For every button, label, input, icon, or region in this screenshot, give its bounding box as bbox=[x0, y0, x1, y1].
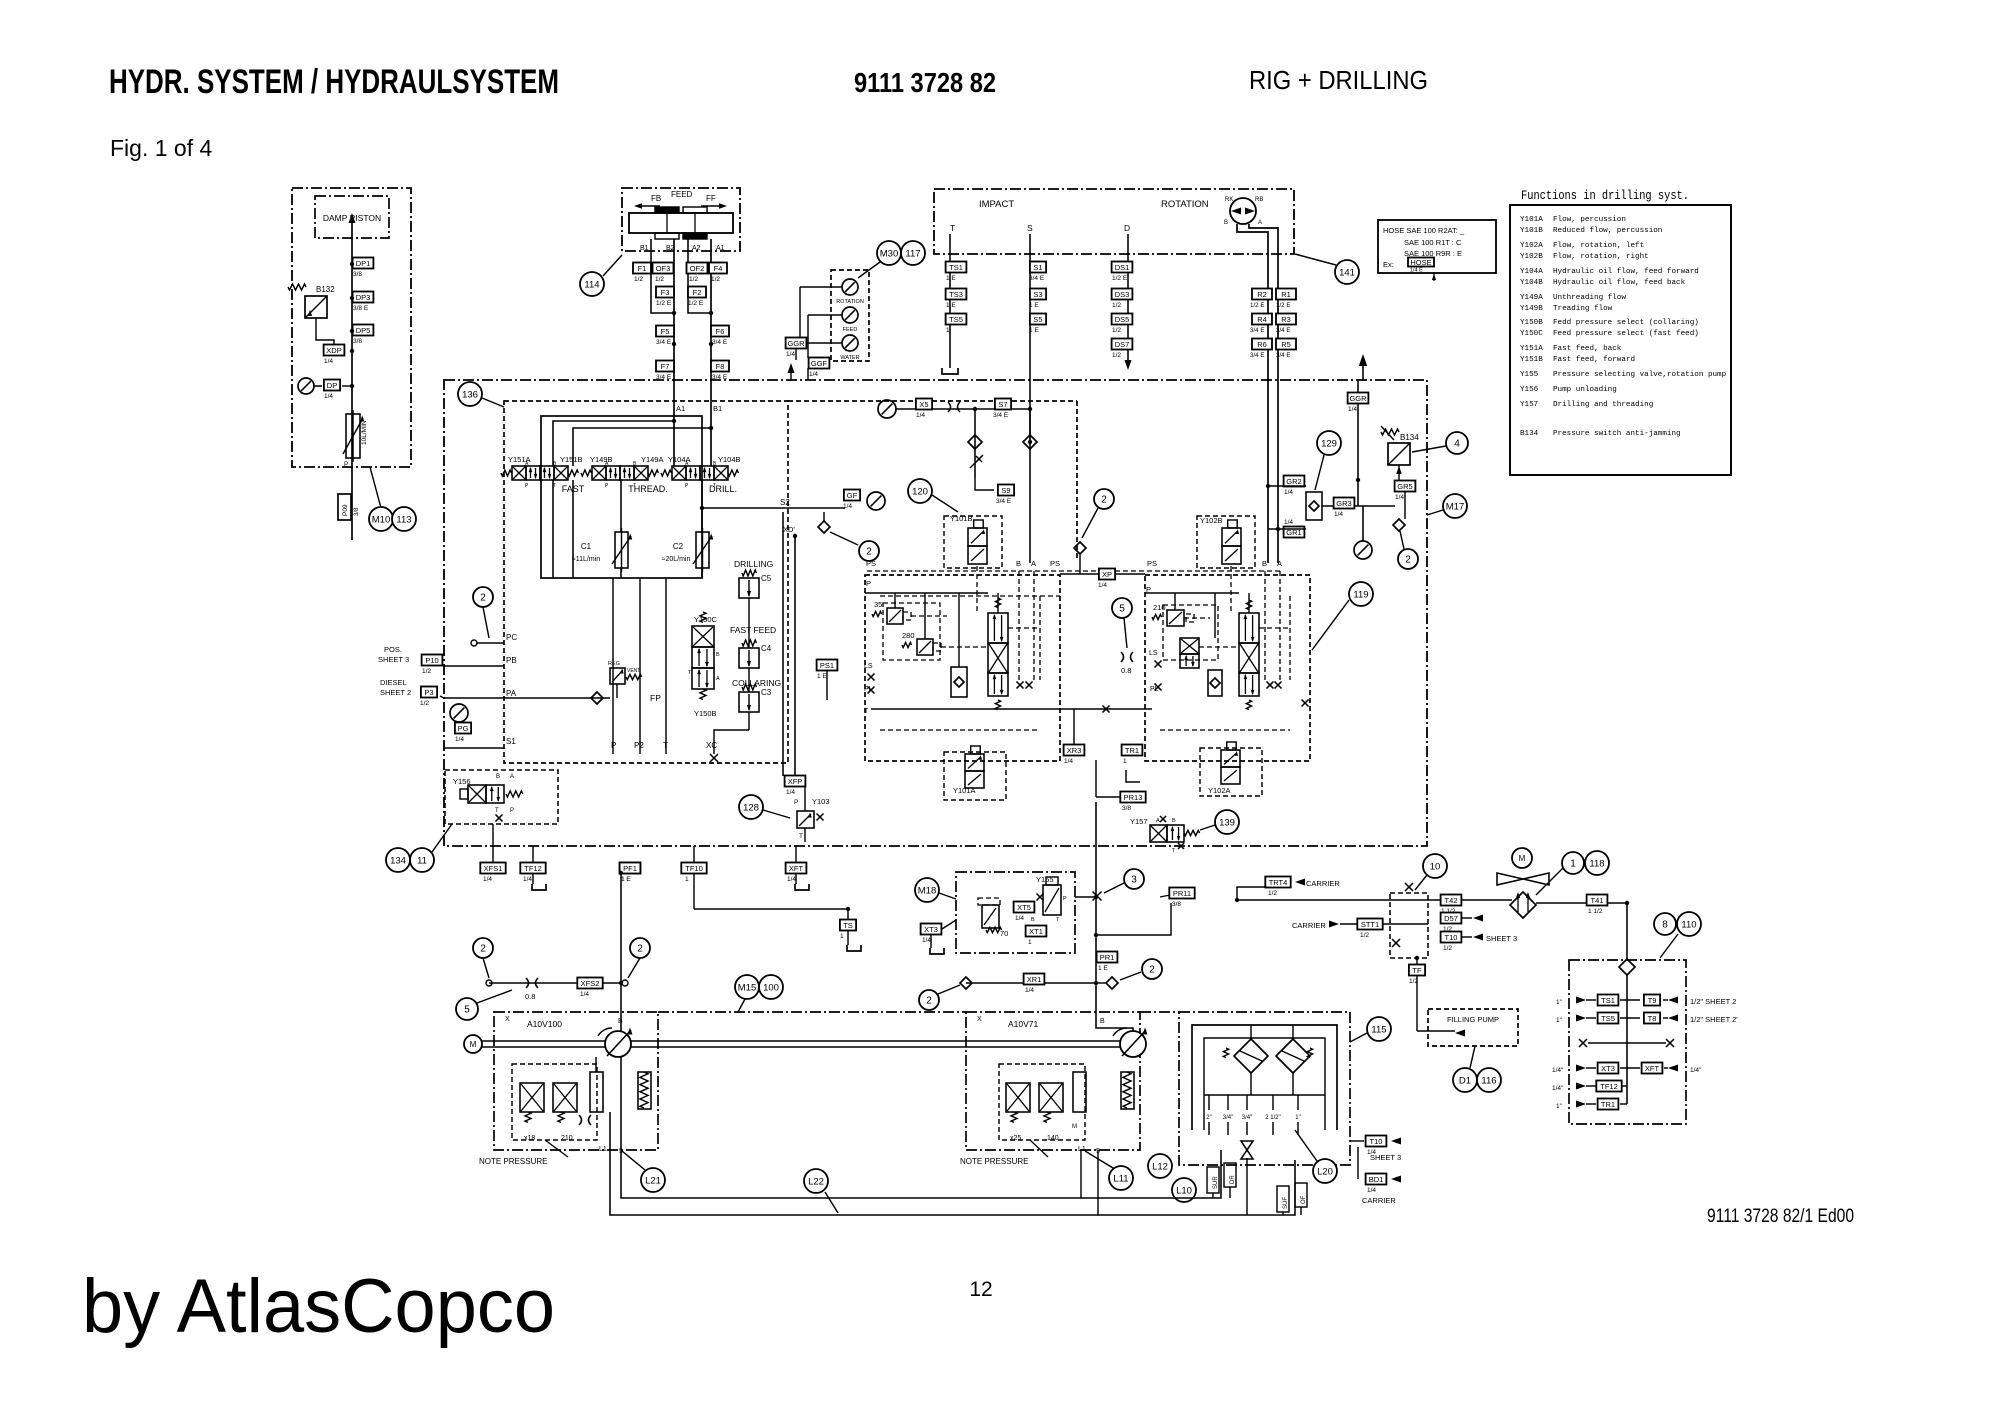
svg-text:B: B bbox=[1031, 917, 1035, 923]
svg-text:NOTE PRESSURE: NOTE PRESSURE bbox=[960, 1157, 1028, 1166]
svg-text:Reduced flow, percussion: Reduced flow, percussion bbox=[1553, 227, 1662, 235]
svg-text:Hydraulic oil flow, feed back: Hydraulic oil flow, feed back bbox=[1553, 279, 1686, 287]
svg-text:B: B bbox=[1172, 818, 1176, 824]
svg-text:1/4": 1/4" bbox=[1690, 1067, 1702, 1074]
svg-text:PA: PA bbox=[506, 689, 517, 698]
svg-text:1/4": 1/4" bbox=[1552, 1067, 1564, 1074]
svg-text:1/2: 1/2 bbox=[420, 700, 429, 707]
svg-text:T: T bbox=[799, 833, 803, 840]
svg-text:FB: FB bbox=[651, 194, 661, 203]
svg-text:T42: T42 bbox=[1445, 896, 1458, 905]
svg-text:R2: R2 bbox=[1257, 290, 1267, 299]
svg-text:B1: B1 bbox=[713, 404, 722, 413]
svg-text:DS5: DS5 bbox=[1115, 315, 1130, 324]
svg-text:3/4 E: 3/4 E bbox=[1029, 275, 1045, 282]
svg-text:SAE 100 R1T : C: SAE 100 R1T : C bbox=[1404, 238, 1462, 247]
svg-text:Y149A: Y149A bbox=[641, 455, 664, 464]
svg-text:P: P bbox=[794, 799, 798, 806]
svg-text:B: B bbox=[1262, 559, 1267, 568]
svg-text:X5: X5 bbox=[919, 400, 928, 409]
svg-text:4: 4 bbox=[1454, 439, 1460, 450]
svg-text:X: X bbox=[977, 1016, 982, 1023]
svg-text:P10: P10 bbox=[425, 656, 438, 665]
svg-text:DS7: DS7 bbox=[1115, 340, 1130, 349]
svg-text:P: P bbox=[344, 461, 348, 468]
svg-text:1/2: 1/2 bbox=[1409, 978, 1418, 985]
svg-text:1/4: 1/4 bbox=[523, 876, 532, 883]
svg-text:R4: R4 bbox=[1257, 315, 1267, 324]
svg-text:10L/MIN: 10L/MIN bbox=[361, 420, 368, 445]
svg-text:1/2: 1/2 bbox=[655, 276, 664, 283]
svg-text:Y150B: Y150B bbox=[1520, 319, 1543, 327]
svg-text:120: 120 bbox=[912, 486, 928, 497]
svg-text:R3: R3 bbox=[1281, 315, 1291, 324]
svg-text:Y150C: Y150C bbox=[1520, 330, 1543, 338]
svg-text:PS: PS bbox=[1050, 559, 1060, 568]
svg-text:by AtlasCopco: by AtlasCopco bbox=[82, 1264, 555, 1349]
svg-text:A1: A1 bbox=[716, 245, 725, 252]
svg-text:Y102A: Y102A bbox=[1520, 242, 1543, 250]
svg-text:PS: PS bbox=[1147, 559, 1157, 568]
svg-text:F2: F2 bbox=[693, 288, 702, 297]
svg-text:FEED: FEED bbox=[843, 327, 858, 333]
svg-text:1/4: 1/4 bbox=[1334, 511, 1343, 518]
svg-text:DS3: DS3 bbox=[1115, 290, 1130, 299]
svg-text:x18: x18 bbox=[524, 1135, 535, 1142]
svg-text:FAST FEED: FAST FEED bbox=[730, 625, 776, 635]
svg-text:1: 1 bbox=[840, 933, 844, 940]
svg-text:A: A bbox=[1156, 818, 1160, 824]
svg-text:OF2: OF2 bbox=[690, 264, 705, 273]
svg-text:1/2: 1/2 bbox=[689, 276, 698, 283]
svg-text:C3: C3 bbox=[761, 688, 772, 697]
svg-text:P2: P2 bbox=[634, 741, 644, 750]
svg-text:1: 1 bbox=[1123, 758, 1127, 765]
svg-text:M30: M30 bbox=[880, 248, 898, 259]
svg-text:1/4: 1/4 bbox=[922, 937, 931, 944]
svg-text:TRT4: TRT4 bbox=[1269, 878, 1288, 887]
svg-text:3/4 E: 3/4 E bbox=[1276, 327, 1290, 334]
svg-text:113: 113 bbox=[396, 514, 411, 525]
svg-text:B132: B132 bbox=[316, 285, 335, 294]
svg-text:RK: RK bbox=[1225, 197, 1233, 203]
svg-text:GGF: GGF bbox=[811, 359, 828, 368]
svg-text:Y102B: Y102B bbox=[1200, 516, 1223, 525]
svg-text:SUR: SUR bbox=[1213, 1176, 1219, 1189]
svg-text:141: 141 bbox=[1339, 267, 1355, 278]
svg-text:1/4: 1/4 bbox=[1098, 582, 1107, 589]
svg-text:Treading flow: Treading flow bbox=[1553, 305, 1613, 313]
svg-text:F3: F3 bbox=[661, 288, 670, 297]
svg-text:Unthreading flow: Unthreading flow bbox=[1553, 294, 1626, 302]
svg-text:S1: S1 bbox=[506, 737, 516, 746]
svg-text:PB: PB bbox=[506, 656, 517, 665]
svg-text:S1: S1 bbox=[1033, 263, 1042, 272]
svg-text:XFS1: XFS1 bbox=[484, 864, 503, 873]
svg-text:B: B bbox=[496, 774, 500, 780]
svg-text:1/4: 1/4 bbox=[324, 393, 333, 400]
svg-text:S5: S5 bbox=[1033, 315, 1042, 324]
svg-text:Y101A: Y101A bbox=[953, 786, 976, 795]
svg-text:11: 11 bbox=[417, 855, 427, 866]
svg-text:1/4: 1/4 bbox=[809, 371, 818, 378]
svg-text:HOSE SAE 100 R2AT: _: HOSE SAE 100 R2AT: _ bbox=[1383, 226, 1465, 235]
svg-text:2: 2 bbox=[480, 593, 486, 604]
svg-text:3/8: 3/8 bbox=[353, 271, 362, 278]
svg-text:X: X bbox=[505, 1016, 510, 1023]
svg-text:ROTATION: ROTATION bbox=[1161, 199, 1209, 210]
svg-text:A: A bbox=[1258, 220, 1262, 226]
svg-text:XR1: XR1 bbox=[1027, 975, 1042, 984]
svg-text:R5: R5 bbox=[1281, 340, 1291, 349]
svg-text:REG: REG bbox=[608, 661, 620, 667]
svg-text:x25: x25 bbox=[1010, 1135, 1021, 1142]
svg-text:LS: LS bbox=[1149, 650, 1158, 657]
svg-text:M: M bbox=[1519, 854, 1526, 863]
svg-text:XT3: XT3 bbox=[924, 925, 938, 934]
svg-text:CARRIER: CARRIER bbox=[1306, 879, 1340, 888]
svg-text:DIESEL: DIESEL bbox=[380, 678, 407, 687]
svg-text:A: A bbox=[1277, 559, 1282, 568]
svg-text:1/4: 1/4 bbox=[324, 358, 333, 365]
svg-text:DP3: DP3 bbox=[356, 293, 371, 302]
svg-text:1/4: 1/4 bbox=[916, 412, 925, 419]
svg-text:1/4: 1/4 bbox=[1284, 519, 1293, 526]
svg-text:3/4 E: 3/4 E bbox=[996, 498, 1012, 505]
svg-text:SHEET 3: SHEET 3 bbox=[378, 655, 409, 664]
svg-text:Pressure selecting valve,rotat: Pressure selecting valve,rotation pump bbox=[1553, 371, 1727, 379]
svg-text:D1: D1 bbox=[1459, 1075, 1471, 1086]
svg-text:Y149B: Y149B bbox=[590, 455, 613, 464]
svg-text:1/2 E: 1/2 E bbox=[656, 300, 672, 307]
svg-text:1/4: 1/4 bbox=[787, 876, 796, 883]
svg-text:L10: L10 bbox=[1176, 1185, 1192, 1196]
svg-text:OF: OF bbox=[1301, 1195, 1307, 1204]
svg-text:3/8: 3/8 bbox=[1172, 901, 1181, 908]
svg-text:Flow, rotation, right: Flow, rotation, right bbox=[1553, 253, 1649, 261]
svg-text:Fig. 1 of 4: Fig. 1 of 4 bbox=[110, 135, 212, 161]
svg-text:B: B bbox=[1224, 220, 1228, 226]
svg-text:DP: DP bbox=[327, 381, 337, 390]
svg-text:128: 128 bbox=[743, 802, 759, 813]
svg-text:1 E: 1 E bbox=[946, 275, 956, 282]
svg-text:M15: M15 bbox=[738, 982, 756, 993]
svg-text:F5: F5 bbox=[661, 327, 670, 336]
svg-text:100: 100 bbox=[763, 982, 779, 993]
svg-text:1": 1" bbox=[1556, 999, 1563, 1006]
svg-text:PG: PG bbox=[458, 724, 469, 733]
svg-text:1/2" SHEET 2: 1/2" SHEET 2 bbox=[1690, 997, 1736, 1006]
svg-text:T: T bbox=[950, 223, 955, 233]
svg-text:115: 115 bbox=[1371, 1024, 1386, 1035]
svg-text:T10: T10 bbox=[1370, 1137, 1383, 1146]
svg-text:Pressure switch anti-jamming: Pressure switch anti-jamming bbox=[1553, 430, 1681, 438]
svg-text:D57: D57 bbox=[1444, 914, 1458, 923]
svg-text:A: A bbox=[716, 676, 720, 682]
svg-text:GR2: GR2 bbox=[1286, 477, 1301, 486]
svg-text:L20: L20 bbox=[1317, 1166, 1333, 1177]
svg-text:L1: L1 bbox=[1078, 1146, 1086, 1153]
svg-text:DP5: DP5 bbox=[356, 326, 371, 335]
svg-text:1/4: 1/4 bbox=[786, 789, 795, 796]
svg-text:0.8: 0.8 bbox=[525, 992, 535, 1001]
svg-text:Y104A: Y104A bbox=[1520, 268, 1543, 276]
svg-text:XT5: XT5 bbox=[1017, 903, 1031, 912]
svg-text:XT3: XT3 bbox=[1601, 1064, 1615, 1073]
svg-text:B: B bbox=[1016, 559, 1021, 568]
svg-text:SHEET 3: SHEET 3 bbox=[1486, 934, 1517, 943]
svg-text:Y102B: Y102B bbox=[1520, 253, 1543, 261]
svg-text:1/2: 1/2 bbox=[711, 276, 720, 283]
svg-text:TR1: TR1 bbox=[1601, 1100, 1615, 1109]
svg-text:XFT: XFT bbox=[1645, 1064, 1660, 1073]
svg-text:FP: FP bbox=[650, 693, 661, 703]
svg-text:TS5: TS5 bbox=[949, 315, 963, 324]
svg-text:S9: S9 bbox=[1001, 486, 1010, 495]
svg-text:1/4: 1/4 bbox=[1348, 406, 1357, 413]
svg-text:1/2" SHEET 2': 1/2" SHEET 2' bbox=[1690, 1015, 1738, 1024]
svg-text:Y151A: Y151A bbox=[1520, 345, 1543, 353]
svg-text:M: M bbox=[470, 1040, 477, 1049]
svg-text:3/8 E: 3/8 E bbox=[353, 305, 369, 312]
svg-text:1: 1 bbox=[685, 876, 689, 883]
svg-text:Fast feed, forward: Fast feed, forward bbox=[1553, 356, 1635, 364]
svg-text:139: 139 bbox=[1219, 817, 1235, 828]
svg-text:3: 3 bbox=[1131, 875, 1137, 886]
svg-text:1/4: 1/4 bbox=[1395, 494, 1404, 501]
svg-text:114: 114 bbox=[584, 279, 599, 290]
svg-text:PS1: PS1 bbox=[820, 661, 834, 670]
svg-text:B: B bbox=[716, 652, 720, 658]
svg-text:0.8: 0.8 bbox=[1121, 666, 1131, 675]
svg-text:P: P bbox=[1063, 896, 1067, 902]
svg-text:THREAD.: THREAD. bbox=[628, 484, 668, 494]
svg-text:GGR: GGR bbox=[787, 339, 805, 348]
svg-text:FILLING PUMP: FILLING PUMP bbox=[1447, 1015, 1499, 1024]
svg-text:M10: M10 bbox=[372, 514, 390, 525]
svg-text:Y150B: Y150B bbox=[694, 709, 717, 718]
svg-text:1": 1" bbox=[1556, 1017, 1563, 1024]
svg-text:Hydraulic oil flow, feed forwa: Hydraulic oil flow, feed forward bbox=[1553, 268, 1699, 276]
svg-text:M: M bbox=[1072, 1124, 1077, 1130]
svg-text:BD1: BD1 bbox=[1369, 1175, 1384, 1184]
svg-text:L22: L22 bbox=[808, 1176, 824, 1187]
svg-text:1/4: 1/4 bbox=[1025, 987, 1034, 994]
svg-text:1/4 E: 1/4 E bbox=[1410, 268, 1423, 274]
svg-text:1/2 E: 1/2 E bbox=[1250, 302, 1264, 309]
svg-text:XFS2: XFS2 bbox=[581, 979, 600, 988]
svg-text:1/2 E: 1/2 E bbox=[1112, 275, 1128, 282]
svg-text:5: 5 bbox=[1119, 604, 1125, 615]
svg-text:WATER: WATER bbox=[840, 355, 859, 361]
svg-text:A2: A2 bbox=[692, 245, 701, 252]
svg-text:Fedd pressure select (collarin: Fedd pressure select (collaring) bbox=[1553, 319, 1699, 327]
svg-text:XT1: XT1 bbox=[1029, 927, 1043, 936]
svg-text:NOTE PRESSURE: NOTE PRESSURE bbox=[479, 1157, 547, 1166]
svg-text:1: 1 bbox=[1570, 859, 1576, 870]
svg-text:1/4: 1/4 bbox=[455, 736, 464, 743]
svg-text:3/4": 3/4" bbox=[1223, 1115, 1233, 1121]
svg-text:≈11L/min: ≈11L/min bbox=[572, 556, 600, 563]
svg-text:3/4 E: 3/4 E bbox=[712, 339, 728, 346]
svg-text:3/8: 3/8 bbox=[354, 507, 360, 516]
svg-text:T9: T9 bbox=[1648, 996, 1657, 1005]
svg-text:1/4: 1/4 bbox=[580, 991, 589, 998]
svg-text:Drilling and threading: Drilling and threading bbox=[1553, 401, 1653, 409]
svg-text:1/2 E: 1/2 E bbox=[1276, 302, 1290, 309]
svg-text:129: 129 bbox=[1321, 438, 1337, 449]
svg-text:FF: FF bbox=[706, 194, 716, 203]
svg-text:S7: S7 bbox=[998, 400, 1007, 409]
svg-text:Y101A: Y101A bbox=[1520, 216, 1543, 224]
svg-text:10: 10 bbox=[1430, 861, 1441, 872]
svg-text:35: 35 bbox=[874, 600, 882, 609]
svg-text:Y150C: Y150C bbox=[694, 615, 718, 624]
svg-text:Y104B: Y104B bbox=[1520, 279, 1543, 287]
svg-text:1/2: 1/2 bbox=[422, 668, 431, 675]
svg-text:FEED: FEED bbox=[671, 190, 693, 199]
svg-text:Ex:: Ex: bbox=[1383, 260, 1394, 269]
svg-text:LS: LS bbox=[864, 663, 873, 670]
svg-text:1 E: 1 E bbox=[1098, 965, 1108, 972]
svg-text:TS3: TS3 bbox=[949, 290, 963, 299]
svg-text:F4: F4 bbox=[714, 264, 723, 273]
svg-text:2: 2 bbox=[1149, 965, 1155, 976]
svg-text:B134: B134 bbox=[1520, 430, 1539, 438]
svg-text:PR11: PR11 bbox=[1173, 889, 1191, 898]
svg-text:C4: C4 bbox=[761, 644, 772, 653]
svg-text:1 E: 1 E bbox=[817, 673, 827, 680]
svg-text:140: 140 bbox=[1047, 1135, 1059, 1142]
svg-text:C5: C5 bbox=[761, 574, 772, 583]
svg-text:A10V71: A10V71 bbox=[1008, 1019, 1039, 1029]
svg-text:118: 118 bbox=[1589, 858, 1604, 869]
svg-text:T: T bbox=[864, 708, 869, 715]
svg-text:ROTATION: ROTATION bbox=[836, 299, 864, 305]
svg-text:1 1/2: 1 1/2 bbox=[1588, 908, 1603, 915]
svg-text:Y151B: Y151B bbox=[1520, 356, 1543, 364]
svg-text:1/2: 1/2 bbox=[1112, 327, 1121, 334]
svg-text:2: 2 bbox=[637, 944, 643, 955]
svg-text:POS.: POS. bbox=[384, 645, 402, 654]
svg-text:XD': XD' bbox=[783, 525, 795, 534]
svg-text:XDP: XDP bbox=[326, 346, 341, 355]
svg-text:3/4 E: 3/4 E bbox=[1276, 352, 1290, 359]
svg-text:TF: TF bbox=[1412, 966, 1422, 975]
svg-text:D: D bbox=[1124, 223, 1130, 233]
svg-text:Flow, percussion: Flow, percussion bbox=[1553, 216, 1626, 224]
svg-text:12: 12 bbox=[969, 1278, 992, 1301]
svg-text:3/4 E: 3/4 E bbox=[1250, 352, 1264, 359]
svg-text:Feed pressure select (fast fee: Feed pressure select (fast feed) bbox=[1553, 330, 1699, 338]
svg-text:PF1: PF1 bbox=[623, 864, 637, 873]
svg-text:1 E: 1 E bbox=[1029, 302, 1039, 309]
svg-text:3/4 E: 3/4 E bbox=[656, 339, 672, 346]
svg-text:Y104B: Y104B bbox=[718, 455, 741, 464]
svg-text:Y149A: Y149A bbox=[1520, 294, 1543, 302]
svg-text:TF12: TF12 bbox=[524, 864, 542, 873]
svg-text:HOSE: HOSE bbox=[1410, 258, 1431, 267]
svg-text:M18: M18 bbox=[918, 885, 936, 896]
svg-text:S3: S3 bbox=[1033, 290, 1042, 299]
svg-text:L21: L21 bbox=[645, 1175, 661, 1186]
svg-text:XP: XP bbox=[1102, 570, 1112, 579]
svg-text:2: 2 bbox=[1405, 555, 1411, 566]
svg-text:T8: T8 bbox=[1648, 1014, 1657, 1023]
svg-text:C1: C1 bbox=[581, 542, 592, 551]
svg-text:280: 280 bbox=[902, 631, 915, 640]
svg-text:HYDR. SYSTEM / HYDRAULSYSTEM: HYDR. SYSTEM / HYDRAULSYSTEM bbox=[109, 63, 559, 101]
svg-text:1/4: 1/4 bbox=[786, 351, 795, 358]
svg-text:DRILL.: DRILL. bbox=[709, 484, 737, 494]
svg-text:1/2: 1/2 bbox=[1443, 945, 1452, 952]
svg-text:L12: L12 bbox=[1152, 1161, 1168, 1172]
svg-text:Y101B: Y101B bbox=[1520, 227, 1543, 235]
svg-text:1 E: 1 E bbox=[1029, 327, 1039, 334]
svg-text:Y156: Y156 bbox=[1520, 386, 1539, 394]
svg-text:TS: TS bbox=[843, 921, 853, 930]
svg-text:134: 134 bbox=[390, 855, 406, 866]
svg-text:P3: P3 bbox=[424, 688, 433, 697]
svg-text:1/4: 1/4 bbox=[843, 503, 852, 510]
svg-text:1/4: 1/4 bbox=[1284, 489, 1293, 496]
svg-text:1/2 E: 1/2 E bbox=[688, 300, 704, 307]
svg-text:B134: B134 bbox=[1400, 433, 1419, 442]
svg-text:F1: F1 bbox=[638, 264, 647, 273]
svg-text:PR1: PR1 bbox=[1100, 953, 1115, 962]
svg-text:1/2: 1/2 bbox=[1112, 352, 1121, 359]
svg-text:SHEET 3: SHEET 3 bbox=[1370, 1153, 1401, 1162]
svg-text:Y151B: Y151B bbox=[560, 455, 583, 464]
svg-text:210: 210 bbox=[561, 1135, 573, 1142]
svg-text:2: 2 bbox=[480, 944, 486, 955]
svg-text:119: 119 bbox=[1353, 589, 1368, 600]
svg-text:T: T bbox=[495, 808, 499, 814]
svg-text:DP1: DP1 bbox=[356, 259, 371, 268]
svg-text:GF: GF bbox=[847, 491, 858, 500]
svg-text:9111 3728 82/1 Ed00: 9111 3728 82/1 Ed00 bbox=[1707, 1206, 1854, 1227]
svg-text:SHEET 2: SHEET 2 bbox=[380, 688, 411, 697]
svg-text:DR: DR bbox=[1230, 1175, 1236, 1184]
svg-text:STT1: STT1 bbox=[1361, 920, 1379, 929]
svg-text:XFT: XFT bbox=[789, 864, 804, 873]
svg-text:1 E: 1 E bbox=[621, 876, 631, 883]
svg-text:L1: L1 bbox=[599, 1146, 607, 1153]
svg-text:1": 1" bbox=[1295, 1115, 1300, 1121]
svg-text:Y149B: Y149B bbox=[1520, 305, 1543, 313]
svg-text:117: 117 bbox=[905, 248, 920, 259]
svg-text:1/4: 1/4 bbox=[1015, 915, 1024, 922]
svg-text:3/8: 3/8 bbox=[353, 338, 362, 345]
svg-text:PS: PS bbox=[866, 559, 876, 568]
svg-text:XFP: XFP bbox=[788, 777, 803, 786]
svg-text:3/4 E: 3/4 E bbox=[993, 412, 1009, 419]
svg-text:3/8: 3/8 bbox=[1122, 805, 1131, 812]
svg-text:PC: PC bbox=[506, 633, 517, 642]
svg-text:1/2: 1/2 bbox=[1112, 302, 1121, 309]
svg-text:P09: P09 bbox=[342, 504, 349, 516]
svg-text:Functions in drilling syst.: Functions in drilling syst. bbox=[1521, 189, 1689, 203]
svg-text:110: 110 bbox=[1681, 919, 1696, 930]
svg-text:T41: T41 bbox=[1591, 896, 1604, 905]
svg-text:IMPACT: IMPACT bbox=[979, 199, 1014, 210]
svg-text:RB: RB bbox=[1255, 197, 1263, 203]
svg-text:2": 2" bbox=[1206, 1115, 1211, 1121]
svg-text:F6: F6 bbox=[716, 327, 725, 336]
svg-text:2: 2 bbox=[926, 996, 932, 1007]
svg-text:L11: L11 bbox=[1113, 1173, 1128, 1184]
svg-text:B1: B1 bbox=[640, 245, 649, 252]
